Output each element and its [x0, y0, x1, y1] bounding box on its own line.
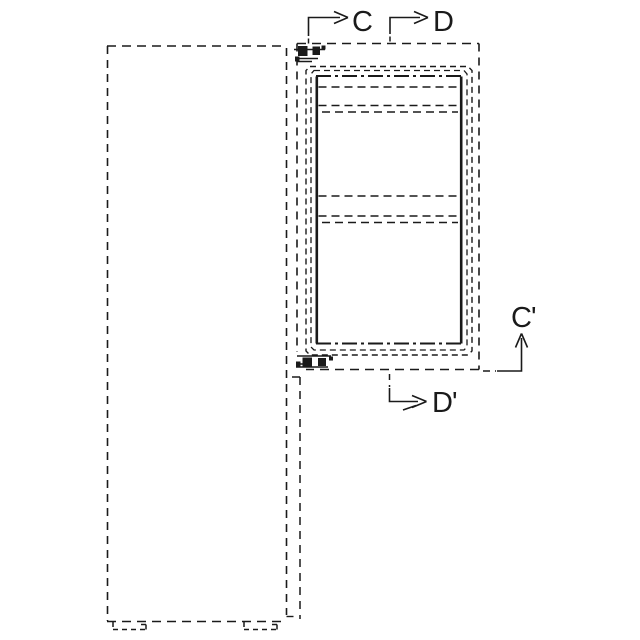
section-marker-c: C [309, 6, 373, 44]
cabinet-foot-left [113, 622, 146, 630]
section-marker-d: D [390, 6, 453, 43]
door-gasket-lines [306, 67, 472, 356]
top-hinge-block-1 [298, 46, 308, 56]
top-hinge-block-2 [313, 47, 321, 56]
door-inner-panel [316, 76, 462, 344]
section-label-c: C [352, 6, 372, 38]
bottom-hinge-foot [296, 362, 301, 368]
section-d-prime-arrow-tick [403, 406, 416, 411]
bottom-hinge-pin [329, 357, 333, 361]
patent-drawing: C D C' D' [0, 0, 640, 640]
door-outer-outline [297, 44, 479, 370]
bottom-hinge [296, 356, 333, 367]
cabinet-lower-side-line [292, 377, 300, 619]
cabinet-body-outline [107, 46, 294, 630]
section-label-d-prime: D' [432, 387, 457, 419]
section-d-prime-leader [390, 388, 419, 402]
section-marker-d-prime: D' [390, 374, 457, 419]
top-hinge-foot [295, 57, 300, 62]
figure-canvas: C D C' D' [0, 0, 640, 640]
section-d-leader [390, 18, 420, 35]
section-label-c-prime: C' [511, 302, 536, 334]
top-hinge [294, 46, 326, 62]
door-shelf-lines [319, 87, 461, 223]
bottom-hinge-block-1 [303, 358, 313, 367]
cabinet-foot-right [244, 622, 277, 630]
bottom-hinge-block-2 [318, 358, 326, 366]
section-label-d: D [433, 6, 453, 38]
top-hinge-pin [322, 46, 326, 50]
section-c-leader [309, 18, 341, 37]
gasket-outer [306, 67, 472, 356]
section-marker-c-prime: C' [483, 302, 536, 371]
